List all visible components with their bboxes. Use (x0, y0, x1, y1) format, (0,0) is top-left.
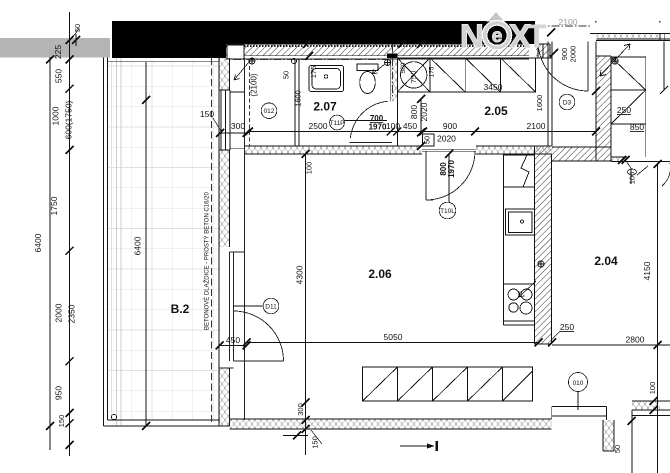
svg-text:2020: 2020 (419, 102, 429, 121)
svg-text:2100: 2100 (527, 121, 546, 131)
svg-text:100: 100 (648, 382, 657, 395)
svg-text:250: 250 (560, 322, 574, 332)
svg-text:450: 450 (403, 121, 417, 131)
svg-text:2100: 2100 (559, 17, 578, 27)
svg-text:e: e (492, 26, 503, 47)
svg-text:2350: 2350 (67, 304, 77, 323)
svg-text:50: 50 (613, 445, 622, 453)
svg-text:2.06: 2.06 (368, 267, 392, 281)
svg-text:1600: 1600 (535, 95, 544, 112)
svg-text:550: 550 (54, 69, 64, 83)
svg-text:2000: 2000 (54, 303, 64, 322)
svg-text:100: 100 (305, 162, 314, 175)
svg-text:150: 150 (57, 415, 66, 428)
svg-text:150: 150 (200, 109, 214, 119)
svg-text:(2100): (2100) (250, 73, 259, 96)
svg-text:450: 450 (226, 335, 240, 345)
svg-text:T11P: T11P (329, 120, 344, 127)
svg-text:225: 225 (53, 45, 63, 59)
svg-text:2500: 2500 (309, 121, 328, 131)
svg-text:1750: 1750 (49, 196, 59, 215)
svg-text:6400: 6400 (133, 236, 143, 255)
svg-text:6400: 6400 (33, 233, 43, 252)
svg-text:BETONOVÉ DLAŽDICE - PROSTÝ BET: BETONOVÉ DLAŽDICE - PROSTÝ BETON C16/20 (203, 192, 211, 330)
svg-text:850: 850 (630, 122, 644, 132)
svg-text:2.05: 2.05 (484, 104, 508, 118)
svg-text:5050: 5050 (384, 332, 403, 342)
svg-text:T: T (527, 18, 547, 55)
svg-text:3450: 3450 (484, 82, 503, 92)
svg-text:50: 50 (282, 71, 291, 79)
svg-text:1600: 1600 (294, 90, 303, 107)
svg-text:300: 300 (296, 403, 305, 416)
svg-text:D11: D11 (265, 304, 277, 311)
svg-text:2.04: 2.04 (594, 254, 618, 268)
svg-text:1970: 1970 (447, 160, 456, 178)
svg-text:D3: D3 (563, 100, 572, 107)
svg-text:2800: 2800 (626, 335, 645, 345)
svg-text:580: 580 (400, 62, 407, 73)
svg-text:50: 50 (73, 24, 82, 32)
svg-text:B.2: B.2 (171, 302, 190, 316)
svg-text:N: N (460, 18, 484, 55)
svg-text:4300: 4300 (295, 265, 305, 284)
svg-text:1970: 1970 (369, 123, 387, 132)
svg-text:600(1750): 600(1750) (64, 100, 74, 139)
svg-text:900: 900 (443, 121, 457, 131)
svg-text:2000: 2000 (569, 46, 578, 63)
svg-text:T10L: T10L (440, 208, 455, 215)
svg-text:2020: 2020 (437, 134, 456, 144)
svg-text:010: 010 (573, 380, 584, 387)
svg-text:4150: 4150 (642, 261, 652, 280)
svg-text:300: 300 (231, 121, 245, 131)
svg-text:150: 150 (311, 436, 320, 449)
svg-text:800: 800 (409, 105, 419, 119)
svg-text:175: 175 (309, 66, 318, 79)
svg-text:750: 750 (409, 71, 418, 84)
svg-text:012: 012 (264, 108, 275, 115)
svg-text:250: 250 (617, 105, 631, 115)
svg-text:2.07: 2.07 (313, 100, 337, 114)
svg-text:950: 950 (54, 386, 64, 400)
svg-text:1000: 1000 (51, 106, 61, 125)
svg-text:100: 100 (628, 172, 637, 185)
